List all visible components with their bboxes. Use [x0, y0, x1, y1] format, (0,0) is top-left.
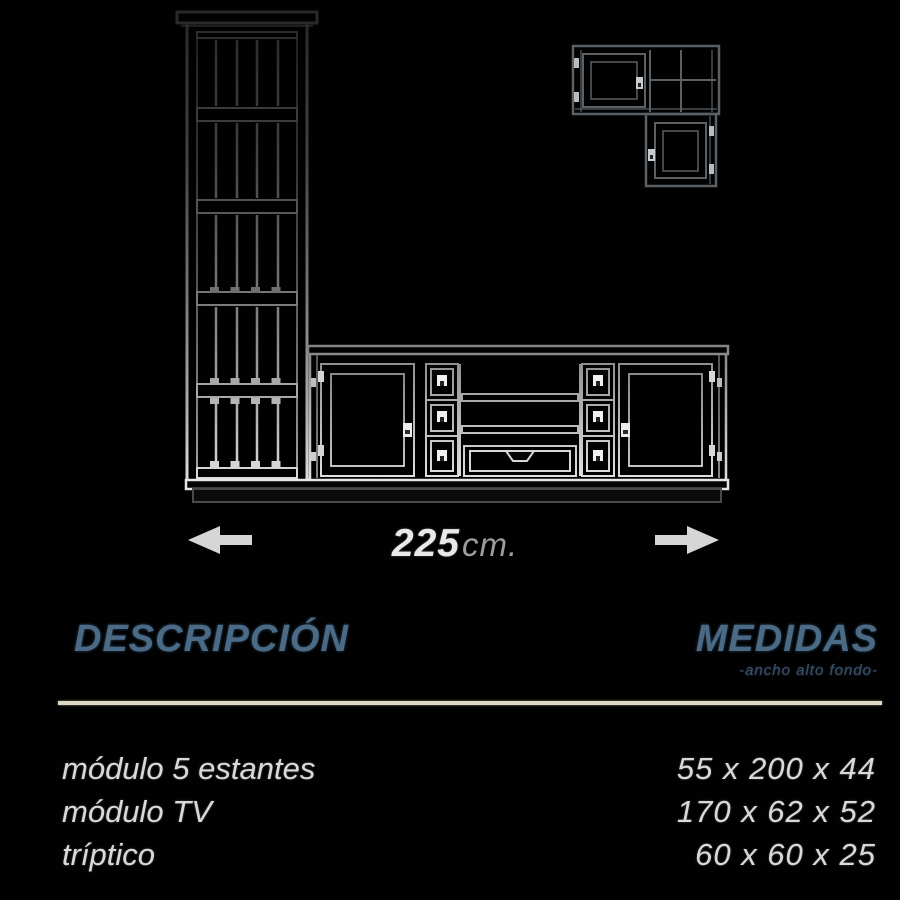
item-name: tríptico [62, 833, 155, 876]
door-hinge [318, 445, 324, 456]
table-row: módulo 5 estantes 55 x 200 x 44 [62, 747, 876, 790]
tv-cabinet-drawing [308, 346, 728, 480]
width-dimension-value: 225 [392, 522, 460, 565]
wall-triptych-drawing [573, 46, 719, 186]
measures-header-group: MEDIDAS -ancho alto fondo- [696, 618, 878, 679]
bookcase-back-slats [216, 40, 278, 466]
tv-drawer-column-left [426, 364, 458, 476]
table-header: DESCRIPCIÓN MEDIDAS -ancho alto fondo- [60, 618, 878, 679]
door-hinge [574, 58, 579, 68]
door-hinge [709, 371, 715, 382]
tv-drawer-column-right [582, 364, 614, 476]
measures-subtitle: -ancho alto fondo- [696, 662, 878, 679]
door-hinge [574, 92, 579, 102]
bookcase-side-panels [187, 24, 307, 480]
door-hinge [709, 126, 714, 136]
door-hinge [318, 371, 324, 382]
spec-table: módulo 5 estantes 55 x 200 x 44 módulo T… [62, 747, 876, 876]
tv-left-door [311, 364, 414, 476]
bookcase-shelf [197, 384, 297, 397]
bookcase-shelf [197, 200, 297, 213]
header-divider [58, 701, 882, 705]
width-dimension-unit: cm. [462, 526, 518, 563]
triptych-door-upper [574, 54, 645, 107]
door-hinge [709, 164, 714, 174]
tv-right-door [619, 364, 722, 476]
niche-shelf [462, 394, 578, 401]
base-board [186, 480, 728, 489]
width-dimension-label: 225cm. [0, 522, 900, 566]
triptych-open-shelves [650, 50, 716, 112]
item-size: 60 x 60 x 25 [695, 833, 876, 876]
bookcase-shelf [197, 292, 297, 305]
drawer-handle [506, 451, 534, 461]
item-size: 170 x 62 x 52 [677, 790, 876, 833]
drawer-knobs [437, 375, 447, 461]
bookcase-cornice [177, 12, 317, 23]
table-row: módulo TV 170 x 62 x 52 [62, 790, 876, 833]
bookcase-shelf [197, 108, 297, 121]
plinth [193, 489, 721, 502]
furniture-diagram [0, 0, 900, 580]
tv-centre-niche [460, 364, 580, 476]
item-size: 55 x 200 x 44 [677, 747, 876, 790]
measures-header: MEDIDAS [696, 618, 878, 661]
niche-shelf [462, 426, 578, 433]
triptych-door-lower [646, 114, 716, 186]
item-name: módulo TV [62, 790, 212, 833]
table-row: tríptico 60 x 60 x 25 [62, 833, 876, 876]
catalog-page: 225cm. DESCRIPCIÓN MEDIDAS -ancho alto f… [0, 0, 900, 900]
item-name: módulo 5 estantes [62, 747, 315, 790]
drawer-knobs [593, 375, 603, 461]
door-hinge [709, 445, 715, 456]
bookcase-drawing [177, 12, 317, 480]
description-header: DESCRIPCIÓN [60, 618, 349, 661]
